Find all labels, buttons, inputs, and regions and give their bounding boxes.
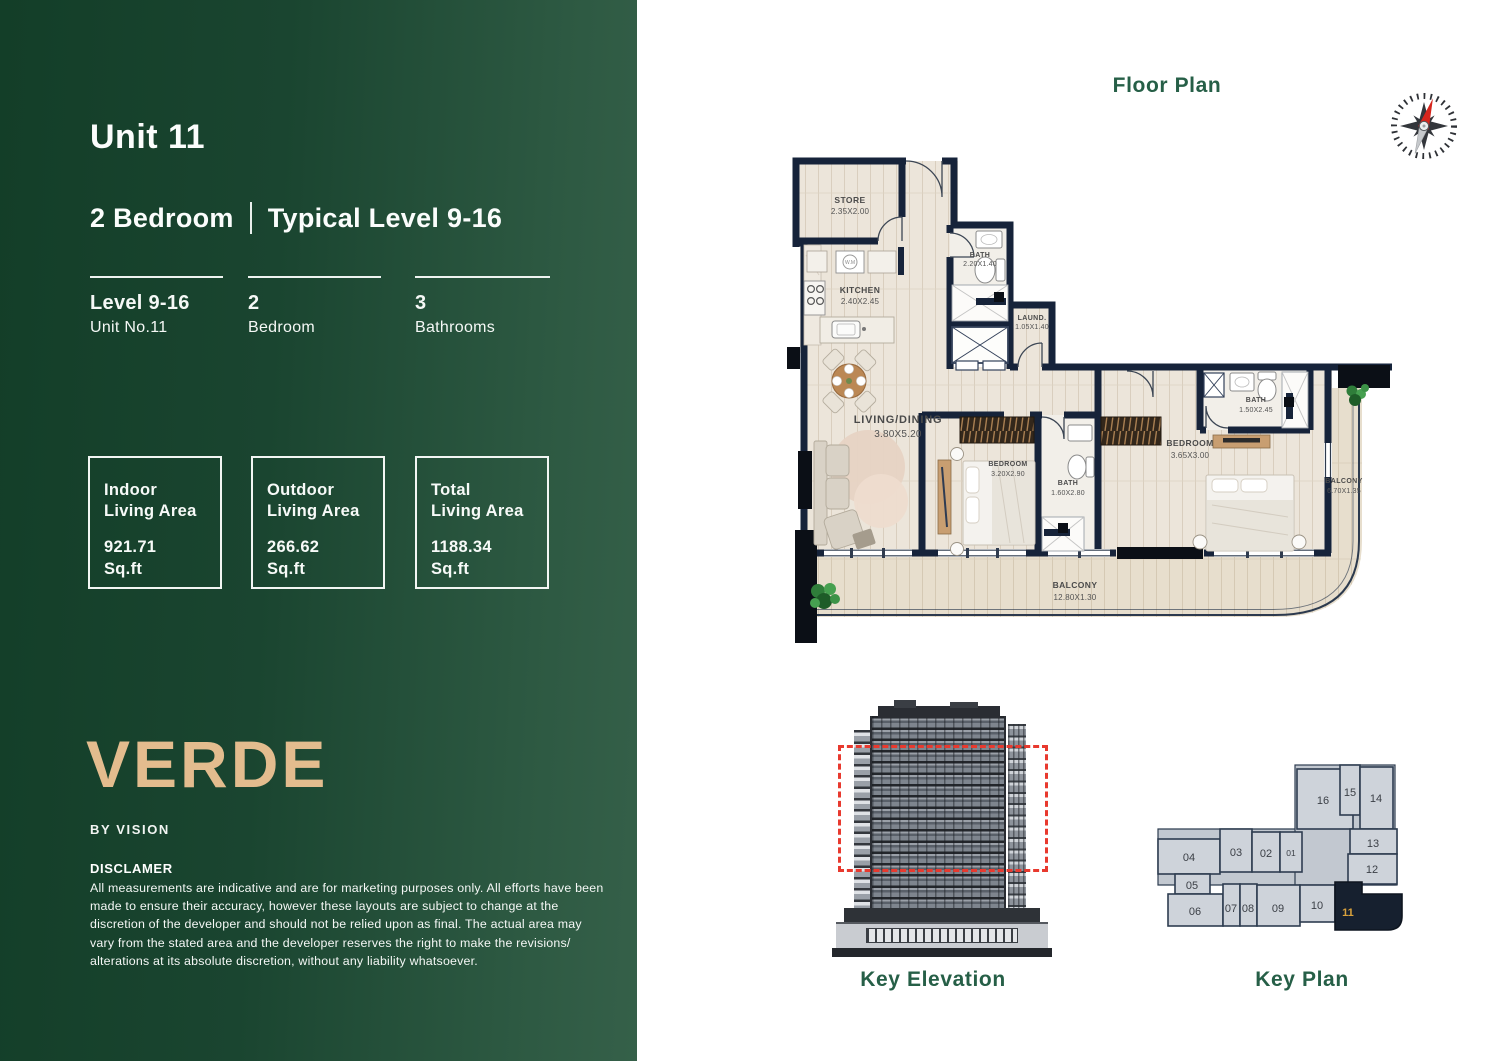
svg-text:16: 16 — [1317, 795, 1329, 807]
svg-text:1.05X1.40: 1.05X1.40 — [1015, 324, 1049, 331]
key-elevation-drawing — [828, 700, 1062, 962]
brand-logo: VERDE — [86, 726, 328, 802]
stat-level: Level 9-16 Unit No.11 — [90, 276, 223, 337]
unit-subtitle: 2 Bedroom Typical Level 9-16 — [90, 202, 502, 234]
service-shaft — [952, 327, 1008, 370]
unit-11-number: 11 — [1342, 907, 1354, 919]
svg-text:1.60X2.80: 1.60X2.80 — [1051, 490, 1085, 497]
floor-plan-drawing: W.M — [780, 145, 1460, 665]
tower-roof-stub — [894, 700, 916, 708]
key-elevation-label: Key Elevation — [808, 968, 1058, 992]
svg-text:12.80X1.30: 12.80X1.30 — [1054, 593, 1097, 602]
svg-text:04: 04 — [1183, 852, 1195, 864]
svg-text:3.80X5.20: 3.80X5.20 — [874, 429, 922, 440]
room-balcony-bottom: BALCONY — [1053, 580, 1098, 590]
svg-text:6.70X1.35: 6.70X1.35 — [1327, 488, 1361, 495]
svg-text:15: 15 — [1344, 787, 1356, 799]
svg-text:07: 07 — [1225, 903, 1237, 915]
svg-text:08: 08 — [1242, 903, 1254, 915]
unit-11-highlight — [1335, 882, 1402, 930]
svg-text:2.35X2.00: 2.35X2.00 — [831, 207, 870, 216]
svg-text:3.65X3.00: 3.65X3.00 — [1171, 451, 1210, 460]
disclaimer-body: All measurements are indicative and are … — [90, 879, 605, 970]
level-highlight-box — [838, 745, 1048, 872]
outdoor-area-box: Outdoor Living Area 266.62 Sq.ft — [251, 456, 385, 589]
total-area-box: Total Living Area 1188.34 Sq.ft — [415, 456, 549, 589]
svg-text:03: 03 — [1230, 847, 1242, 859]
svg-text:01: 01 — [1286, 848, 1296, 858]
svg-text:09: 09 — [1272, 903, 1284, 915]
disclaimer-title: DISCLAMER — [90, 861, 173, 876]
svg-text:14: 14 — [1370, 793, 1382, 805]
page-title: Unit 11 — [90, 118, 205, 157]
room-laundry: LAUND. — [1018, 315, 1047, 322]
svg-text:13: 13 — [1367, 838, 1379, 850]
bedroom1-furniture — [951, 417, 1036, 556]
svg-text:1.50X2.45: 1.50X2.45 — [1239, 407, 1273, 414]
svg-text:02: 02 — [1260, 848, 1272, 860]
indoor-area-box: Indoor Living Area 921.71 Sq.ft — [88, 456, 222, 589]
svg-text:3.20X2.90: 3.20X2.90 — [991, 471, 1025, 478]
washing-machine-label: W.M — [845, 260, 855, 266]
svg-text:2.40X2.45: 2.40X2.45 — [841, 297, 880, 306]
room-bedroom2: BEDROOM — [1166, 438, 1213, 448]
room-bath-right: BATH — [1246, 397, 1267, 404]
subtitle-bedroom: 2 Bedroom — [90, 203, 234, 234]
key-plan-label: Key Plan — [1202, 968, 1402, 992]
tower-podium-band — [844, 908, 1040, 922]
sidebar-panel: Unit 11 2 Bedroom Typical Level 9-16 Lev… — [0, 0, 637, 1061]
room-kitchen: KITCHEN — [840, 285, 881, 295]
subtitle-divider — [250, 202, 252, 234]
subtitle-level: Typical Level 9-16 — [268, 203, 503, 234]
room-bedroom1: BEDROOM — [988, 461, 1027, 468]
tower-podium-colonnade — [866, 928, 1018, 943]
room-living: LIVING/DINING — [854, 414, 943, 426]
room-bath-mid: BATH — [1058, 480, 1079, 487]
room-bath-top: BATH — [970, 252, 991, 259]
brand-tagline: BY VISION — [90, 822, 170, 837]
room-balcony-right: BALCONY — [1325, 478, 1362, 485]
tower-roof-stub2 — [950, 702, 978, 708]
stat-bedrooms: 2 Bedroom — [248, 276, 381, 337]
svg-text:05: 05 — [1186, 880, 1198, 892]
room-store: STORE — [834, 195, 865, 205]
svg-text:2.20X1.40: 2.20X1.40 — [963, 261, 997, 268]
svg-text:10: 10 — [1311, 900, 1323, 912]
tower-base — [832, 948, 1052, 957]
svg-text:12: 12 — [1366, 864, 1378, 876]
stat-bathrooms: 3 Bathrooms — [415, 276, 550, 337]
key-plan-drawing: 04 03 02 01 05 06 07 08 09 10 11 12 13 1… — [1140, 752, 1430, 937]
svg-text:06: 06 — [1189, 906, 1201, 918]
floor-plan-title: Floor Plan — [1067, 74, 1267, 98]
